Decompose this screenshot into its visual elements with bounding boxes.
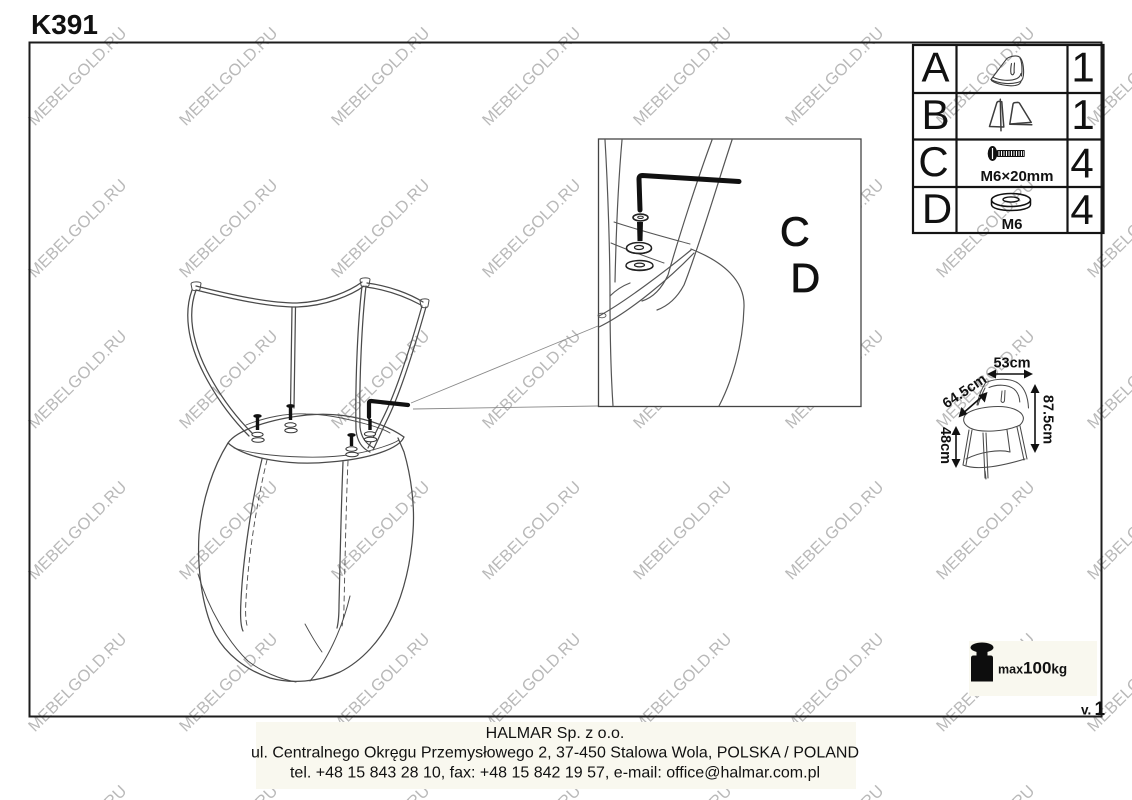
svg-text:B: B [921,91,949,138]
svg-text:4: 4 [1070,186,1093,233]
svg-text:M6: M6 [1002,216,1023,233]
svg-text:tel. +48 15 843 28 10, fax: +4: tel. +48 15 843 28 10, fax: +48 15 842 1… [290,765,820,782]
svg-text:HALMAR Sp. z o.o.: HALMAR Sp. z o.o. [486,725,625,742]
svg-text:53cm: 53cm [993,356,1030,372]
svg-text:1: 1 [1071,44,1094,91]
svg-text:C: C [780,209,810,255]
svg-text:1: 1 [1095,699,1106,720]
svg-text:1: 1 [1071,91,1094,138]
svg-text:D: D [922,185,952,232]
svg-text:4: 4 [1070,140,1093,187]
svg-text:D: D [791,255,821,301]
svg-text:A: A [921,44,949,91]
svg-text:87.5cm: 87.5cm [1040,395,1056,444]
svg-text:M6×20mm: M6×20mm [981,168,1054,185]
svg-text:48cm: 48cm [937,427,953,464]
svg-text:v.: v. [1081,703,1091,718]
svg-text:K391: K391 [31,9,98,40]
svg-text:C: C [918,138,948,185]
svg-text:ul. Centralnego Okręgu Przemys: ul. Centralnego Okręgu Przemysłowego 2, … [251,745,859,762]
